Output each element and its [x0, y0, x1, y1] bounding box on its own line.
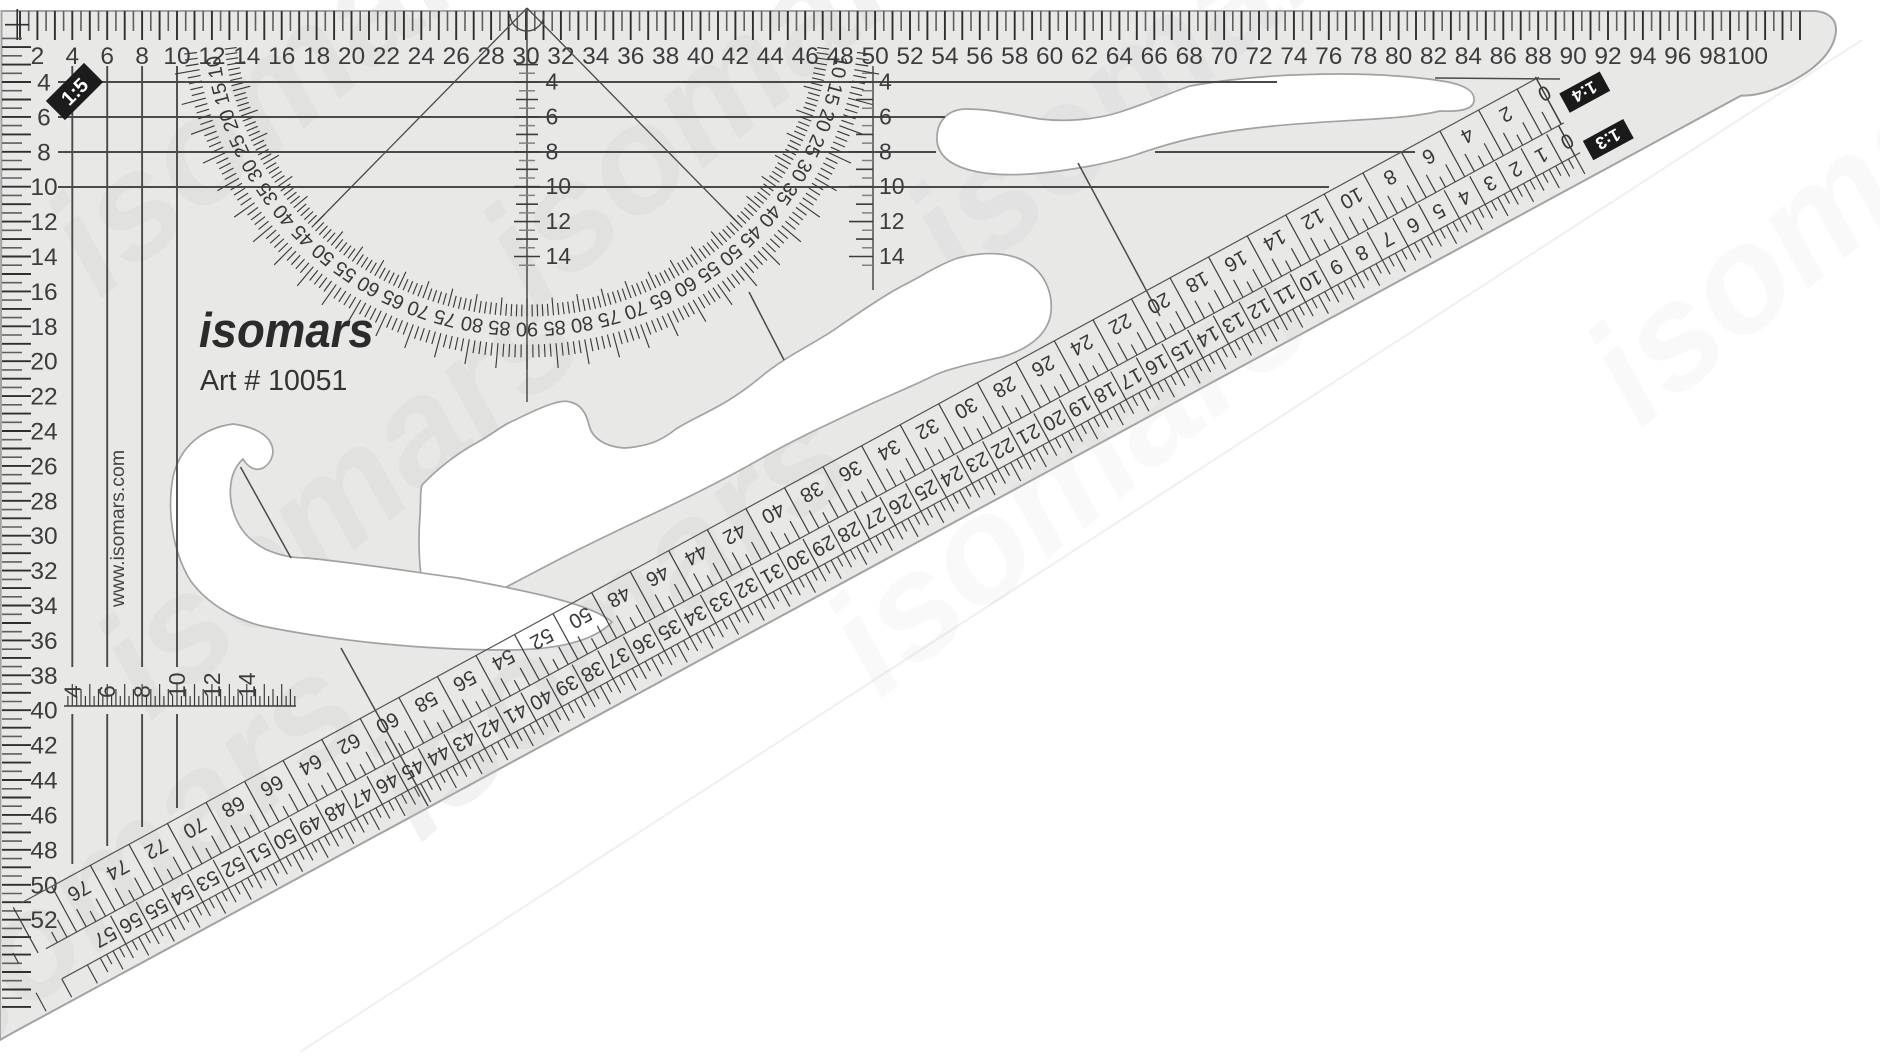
svg-text:36: 36	[30, 628, 57, 655]
svg-text:10: 10	[203, 54, 229, 80]
svg-text:78: 78	[1350, 43, 1377, 70]
svg-text:46: 46	[792, 43, 819, 70]
svg-text:85: 85	[543, 315, 567, 339]
svg-text:80: 80	[1385, 43, 1412, 70]
svg-text:4: 4	[879, 69, 892, 95]
svg-text:52: 52	[896, 43, 923, 70]
svg-text:68: 68	[1176, 43, 1203, 70]
svg-text:22: 22	[373, 43, 400, 70]
svg-text:52: 52	[30, 907, 57, 934]
svg-text:4: 4	[65, 43, 79, 70]
svg-text:92: 92	[1594, 43, 1621, 70]
svg-text:2: 2	[31, 43, 45, 70]
svg-text:10: 10	[546, 173, 572, 199]
svg-text:18: 18	[30, 314, 57, 341]
svg-text:80: 80	[459, 311, 485, 337]
svg-text:8: 8	[546, 138, 559, 164]
svg-text:14: 14	[30, 244, 57, 271]
svg-text:38: 38	[652, 43, 679, 70]
svg-text:64: 64	[1106, 43, 1133, 70]
svg-text:18: 18	[303, 43, 330, 70]
svg-text:6: 6	[546, 103, 559, 129]
svg-text:74: 74	[1280, 43, 1307, 70]
svg-text:4: 4	[37, 70, 51, 97]
svg-text:4: 4	[546, 69, 559, 95]
svg-text:26: 26	[30, 453, 57, 480]
svg-text:24: 24	[30, 419, 57, 446]
svg-text:34: 34	[582, 43, 609, 70]
svg-text:72: 72	[1245, 43, 1272, 70]
svg-text:20: 20	[30, 349, 57, 376]
svg-text:90: 90	[516, 318, 538, 340]
svg-text:82: 82	[1420, 43, 1447, 70]
svg-text:6: 6	[879, 103, 892, 129]
svg-text:28: 28	[30, 488, 57, 515]
svg-text:8: 8	[135, 43, 149, 70]
svg-text:12: 12	[879, 208, 905, 234]
svg-text:100: 100	[1727, 43, 1768, 70]
svg-text:6: 6	[100, 43, 114, 70]
svg-text:www.isomars.com: www.isomars.com	[107, 450, 129, 608]
svg-text:85: 85	[487, 315, 511, 339]
svg-text:8: 8	[37, 139, 51, 166]
svg-text:30: 30	[30, 523, 57, 550]
svg-text:14: 14	[233, 43, 260, 70]
svg-text:46: 46	[30, 802, 57, 829]
svg-text:42: 42	[30, 733, 57, 760]
svg-text:Art # 10051: Art # 10051	[200, 365, 347, 397]
svg-text:36: 36	[617, 43, 644, 70]
svg-text:26: 26	[443, 43, 470, 70]
svg-text:8: 8	[879, 138, 892, 164]
svg-text:84: 84	[1455, 43, 1482, 70]
svg-text:88: 88	[1525, 43, 1552, 70]
svg-text:6: 6	[37, 104, 51, 131]
svg-text:98: 98	[1699, 43, 1726, 70]
svg-text:12: 12	[546, 208, 572, 234]
svg-text:14: 14	[879, 243, 905, 269]
svg-text:44: 44	[757, 43, 784, 70]
svg-text:80: 80	[569, 311, 595, 337]
svg-text:24: 24	[408, 43, 435, 70]
svg-text:48: 48	[30, 837, 57, 864]
svg-text:12: 12	[30, 209, 57, 236]
svg-text:20: 20	[338, 43, 365, 70]
svg-text:16: 16	[268, 43, 295, 70]
svg-text:38: 38	[30, 663, 57, 690]
svg-text:90: 90	[1559, 43, 1586, 70]
svg-text:94: 94	[1629, 43, 1656, 70]
svg-text:14: 14	[546, 243, 572, 269]
svg-text:96: 96	[1664, 43, 1691, 70]
svg-text:10: 10	[826, 54, 852, 80]
svg-text:34: 34	[30, 593, 57, 620]
svg-text:10: 10	[30, 174, 57, 201]
svg-text:40: 40	[30, 698, 57, 725]
svg-text:16: 16	[30, 279, 57, 306]
svg-text:76: 76	[1315, 43, 1342, 70]
svg-text:54: 54	[931, 43, 958, 70]
svg-text:32: 32	[547, 43, 574, 70]
svg-text:30: 30	[512, 43, 539, 70]
svg-text:56: 56	[966, 43, 993, 70]
svg-text:60: 60	[1036, 43, 1063, 70]
svg-text:86: 86	[1490, 43, 1517, 70]
svg-text:66: 66	[1141, 43, 1168, 70]
svg-text:44: 44	[30, 768, 57, 795]
svg-text:58: 58	[1001, 43, 1028, 70]
svg-text:42: 42	[722, 43, 749, 70]
svg-text:isomars: isomars	[199, 304, 374, 359]
svg-text:10: 10	[879, 173, 905, 199]
svg-text:28: 28	[477, 43, 504, 70]
svg-text:62: 62	[1071, 43, 1098, 70]
svg-text:40: 40	[687, 43, 714, 70]
svg-text:32: 32	[30, 558, 57, 585]
svg-text:70: 70	[1210, 43, 1237, 70]
svg-text:22: 22	[30, 384, 57, 411]
